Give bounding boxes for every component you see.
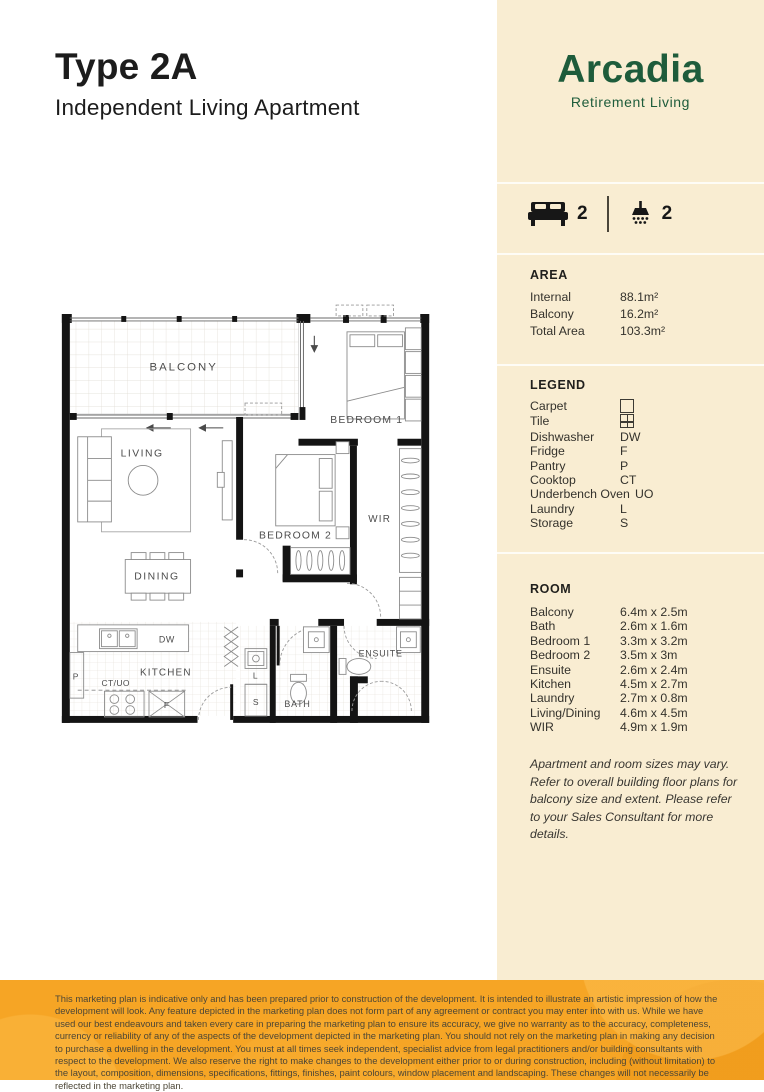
label-laundry: L [253, 670, 258, 680]
legend-row: Tile [530, 414, 740, 429]
area-row: Total Area103.3m² [530, 323, 740, 340]
wir-joinery [399, 449, 421, 619]
label-storage: S [253, 697, 259, 707]
room-row: Ensuite2.6m x 2.4m [530, 663, 740, 677]
room-row: Laundry2.7m x 0.8m [530, 691, 740, 705]
page-subtitle: Independent Living Apartment [55, 95, 360, 121]
area-row: Internal88.1m² [530, 289, 740, 306]
bedroom1-furniture [347, 328, 421, 421]
room-row: Kitchen4.5m x 2.7m [530, 677, 740, 691]
area-heading: AREA [530, 268, 740, 282]
floorplan: BALCONY BEDROOM 1 LIVING BEDROOM 2 WIR D… [50, 290, 446, 736]
legend-section: LEGEND Carpet Tile DishwasherDW FridgeF … [530, 378, 740, 531]
brand-name: Arcadia [497, 50, 764, 89]
label-wir: WIR [368, 514, 391, 525]
tile-swatch-icon [620, 414, 634, 428]
section-divider [497, 182, 764, 184]
living-furniture [78, 429, 232, 532]
label-bedroom1: BEDROOM 1 [330, 415, 403, 426]
brand-tagline: Retirement Living [497, 94, 764, 110]
carpet-swatch-icon [620, 399, 634, 413]
room-heading: ROOM [530, 582, 740, 596]
area-row: Balcony16.2m² [530, 306, 740, 323]
legend-row: FridgeF [530, 444, 740, 458]
section-divider [497, 364, 764, 366]
bathroom-count: 2 [662, 203, 673, 225]
footer-disclaimer-text: This marketing plan is indicative only a… [0, 980, 764, 1092]
bed-bath-summary: 2 2 [528, 196, 672, 232]
floorplan-drawing: BALCONY BEDROOM 1 LIVING BEDROOM 2 WIR D… [50, 290, 446, 736]
summary-divider [607, 196, 609, 232]
room-section: ROOM Balcony6.4m x 2.5m Bath2.6m x 1.6m … [530, 582, 740, 735]
legend-row: Carpet [530, 399, 740, 414]
label-pantry: P [73, 671, 79, 681]
room-row: Balcony6.4m x 2.5m [530, 605, 740, 619]
section-divider [497, 253, 764, 255]
label-dining: DINING [134, 571, 179, 582]
room-row: Living/Dining4.6m x 4.5m [530, 706, 740, 720]
room-row: Bedroom 13.3m x 3.2m [530, 634, 740, 648]
room-row: Bedroom 23.5m x 3m [530, 648, 740, 662]
room-row: Bath2.6m x 1.6m [530, 619, 740, 633]
label-kitchen: KITCHEN [140, 667, 192, 678]
legend-heading: LEGEND [530, 378, 740, 392]
legend-row: StorageS [530, 516, 740, 530]
label-ensuite: ENSUITE [359, 649, 403, 659]
label-living: LIVING [121, 449, 164, 460]
label-ct-uo: CT/UO [101, 678, 129, 688]
legend-row: DishwasherDW [530, 430, 740, 444]
page-title: Type 2A [55, 48, 360, 87]
area-section: AREA Internal88.1m² Balcony16.2m² Total … [530, 268, 740, 340]
disclaimer-note: Apartment and room sizes may vary. Refer… [530, 756, 738, 844]
legend-row: CooktopCT [530, 473, 740, 487]
legend-row: LaundryL [530, 502, 740, 516]
label-bath: BATH [284, 699, 310, 709]
section-divider [497, 552, 764, 554]
shower-icon [628, 201, 653, 228]
legend-row: PantryP [530, 459, 740, 473]
page-header: Type 2A Independent Living Apartment [55, 48, 360, 121]
brand-logo: Arcadia Retirement Living [497, 50, 764, 110]
room-row: WIR4.9m x 1.9m [530, 720, 740, 734]
label-fridge: F [164, 700, 169, 710]
bedroom-count: 2 [577, 203, 588, 225]
label-dw: DW [159, 635, 175, 645]
label-bedroom2: BEDROOM 2 [259, 531, 332, 542]
bed-icon [528, 202, 568, 227]
legend-row: Underbench OvenUO [530, 487, 740, 501]
info-panel: Arcadia Retirement Living 2 2 AREA Inter… [497, 0, 764, 980]
label-balcony: BALCONY [150, 361, 218, 373]
footer-bar: This marketing plan is indicative only a… [0, 980, 764, 1080]
